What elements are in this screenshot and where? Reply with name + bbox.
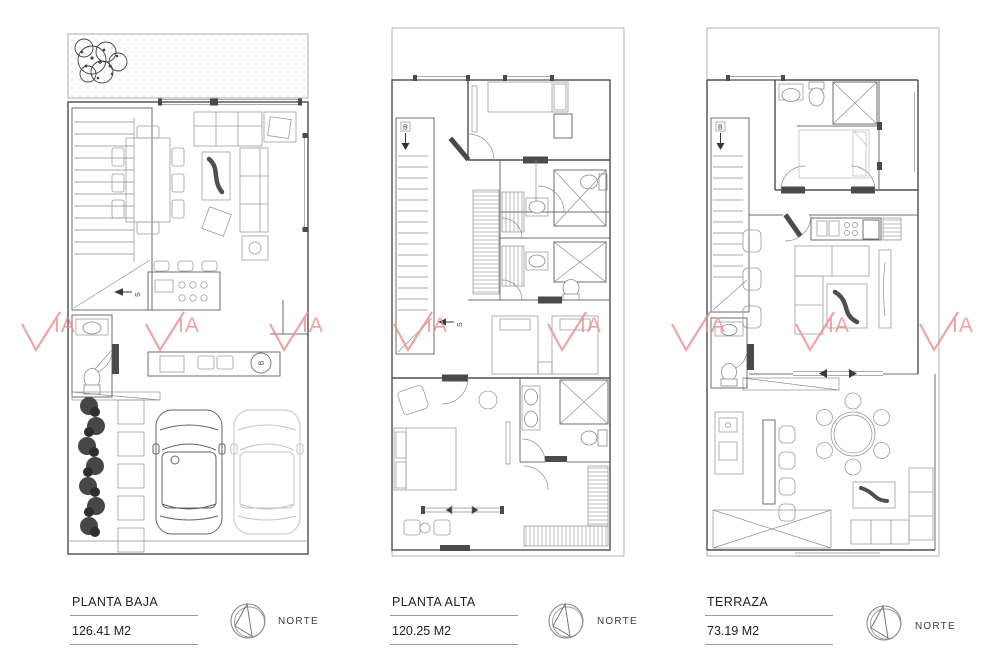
walk-in-closet bbox=[524, 466, 608, 546]
boiler-label: B bbox=[259, 360, 266, 365]
stair-direction-arrow: S bbox=[438, 319, 464, 328]
sink bbox=[721, 325, 737, 336]
toilet bbox=[722, 364, 737, 381]
sink bbox=[529, 201, 545, 213]
pantry bbox=[883, 218, 901, 240]
bed bbox=[394, 428, 456, 490]
door-threshold bbox=[851, 187, 875, 194]
plan-title: TERRAZA bbox=[705, 595, 833, 616]
plan-label-planta-alta: PLANTA ALTA 120.25 M2 bbox=[390, 595, 518, 645]
stair-direction-arrow: S bbox=[114, 288, 142, 297]
door-threshold bbox=[442, 375, 468, 382]
toilet bbox=[581, 431, 597, 445]
north-label: NORTE bbox=[915, 621, 956, 632]
north-compass-icon bbox=[863, 600, 905, 646]
door-leaf bbox=[783, 213, 802, 237]
floor-plan-terraza: B bbox=[703, 22, 943, 564]
pergola bbox=[713, 510, 831, 548]
plan-label-planta-baja: PLANTA BAJA 126.41 M2 bbox=[70, 595, 198, 645]
balcony-furniture bbox=[404, 520, 450, 535]
north-compass-icon bbox=[227, 598, 269, 644]
plan-area: 126.41 M2 bbox=[70, 616, 198, 645]
floor-plan-planta-baja: S bbox=[62, 22, 312, 564]
armchair bbox=[397, 385, 429, 416]
sofa-set bbox=[194, 112, 296, 260]
bar-counter bbox=[763, 420, 795, 521]
garage bbox=[68, 392, 308, 552]
stair-down-label: B bbox=[718, 125, 723, 132]
plan-area: 73.19 M2 bbox=[705, 616, 833, 645]
toilet bbox=[809, 88, 824, 106]
north-label: NORTE bbox=[597, 616, 638, 627]
bedroom-1 bbox=[448, 80, 610, 164]
plan-title: PLANTA BAJA bbox=[70, 595, 198, 616]
outdoor-sofa bbox=[851, 468, 933, 544]
bedroom-2 bbox=[468, 297, 610, 375]
svg-text:IA: IA bbox=[952, 314, 974, 337]
door-leaf bbox=[448, 137, 470, 162]
tv-console bbox=[879, 250, 891, 328]
round-dining-table bbox=[816, 393, 889, 475]
north-label: NORTE bbox=[278, 616, 319, 627]
bed bbox=[799, 130, 869, 178]
top-windows bbox=[726, 75, 785, 81]
round-chair bbox=[479, 391, 497, 409]
sink bbox=[782, 89, 800, 102]
pavers bbox=[118, 400, 144, 552]
terrace bbox=[713, 393, 933, 556]
door-threshold bbox=[781, 187, 805, 194]
door-threshold bbox=[545, 456, 567, 462]
kitchenette bbox=[749, 213, 918, 241]
sliding-door bbox=[749, 369, 918, 378]
plan-label-terraza: TERRAZA 73.19 M2 bbox=[705, 595, 833, 645]
north-compass-icon bbox=[545, 598, 587, 644]
stair-up-label: S bbox=[457, 322, 464, 327]
stair-down-label: B bbox=[403, 125, 408, 132]
bed bbox=[488, 82, 568, 112]
bar-stools bbox=[743, 230, 761, 328]
house-outline bbox=[392, 80, 610, 550]
sink bbox=[525, 411, 538, 427]
bedroom-suite bbox=[775, 80, 918, 194]
shrubs bbox=[78, 397, 105, 537]
kitchen-island bbox=[148, 261, 220, 310]
master-bathroom bbox=[520, 378, 610, 462]
lounge bbox=[743, 230, 918, 390]
rug-with-art bbox=[853, 482, 895, 508]
dining-table bbox=[112, 126, 184, 234]
balcony-window bbox=[421, 506, 504, 514]
plan-title: PLANTA ALTA bbox=[390, 595, 518, 616]
mirror bbox=[472, 86, 477, 132]
stair-up-label: S bbox=[135, 292, 142, 297]
linen-closet bbox=[473, 190, 499, 294]
sink bbox=[525, 389, 538, 405]
bathroom bbox=[711, 318, 754, 388]
right-wall-window bbox=[303, 133, 308, 232]
car-dark bbox=[153, 410, 225, 534]
closet bbox=[502, 192, 524, 232]
staircase: B bbox=[396, 118, 434, 354]
fridge bbox=[863, 220, 879, 239]
sink bbox=[529, 255, 545, 267]
car-light bbox=[231, 410, 303, 534]
door-threshold bbox=[747, 344, 754, 370]
outdoor-kitchen bbox=[715, 412, 743, 474]
mirror bbox=[506, 422, 510, 464]
garden-strip bbox=[68, 34, 308, 98]
door-threshold bbox=[112, 344, 119, 374]
door-threshold bbox=[523, 157, 548, 164]
bathroom-b bbox=[502, 242, 606, 300]
house-outline bbox=[707, 80, 935, 550]
rug-with-art bbox=[827, 284, 867, 328]
plan-area: 120.25 M2 bbox=[390, 616, 518, 645]
bathroom bbox=[72, 315, 119, 397]
floor-plan-planta-alta: B S bbox=[388, 22, 628, 564]
desk bbox=[554, 114, 572, 138]
master-bedroom bbox=[392, 375, 610, 552]
rug-with-art bbox=[202, 152, 230, 200]
ottoman bbox=[202, 207, 231, 236]
door-threshold bbox=[538, 297, 562, 304]
